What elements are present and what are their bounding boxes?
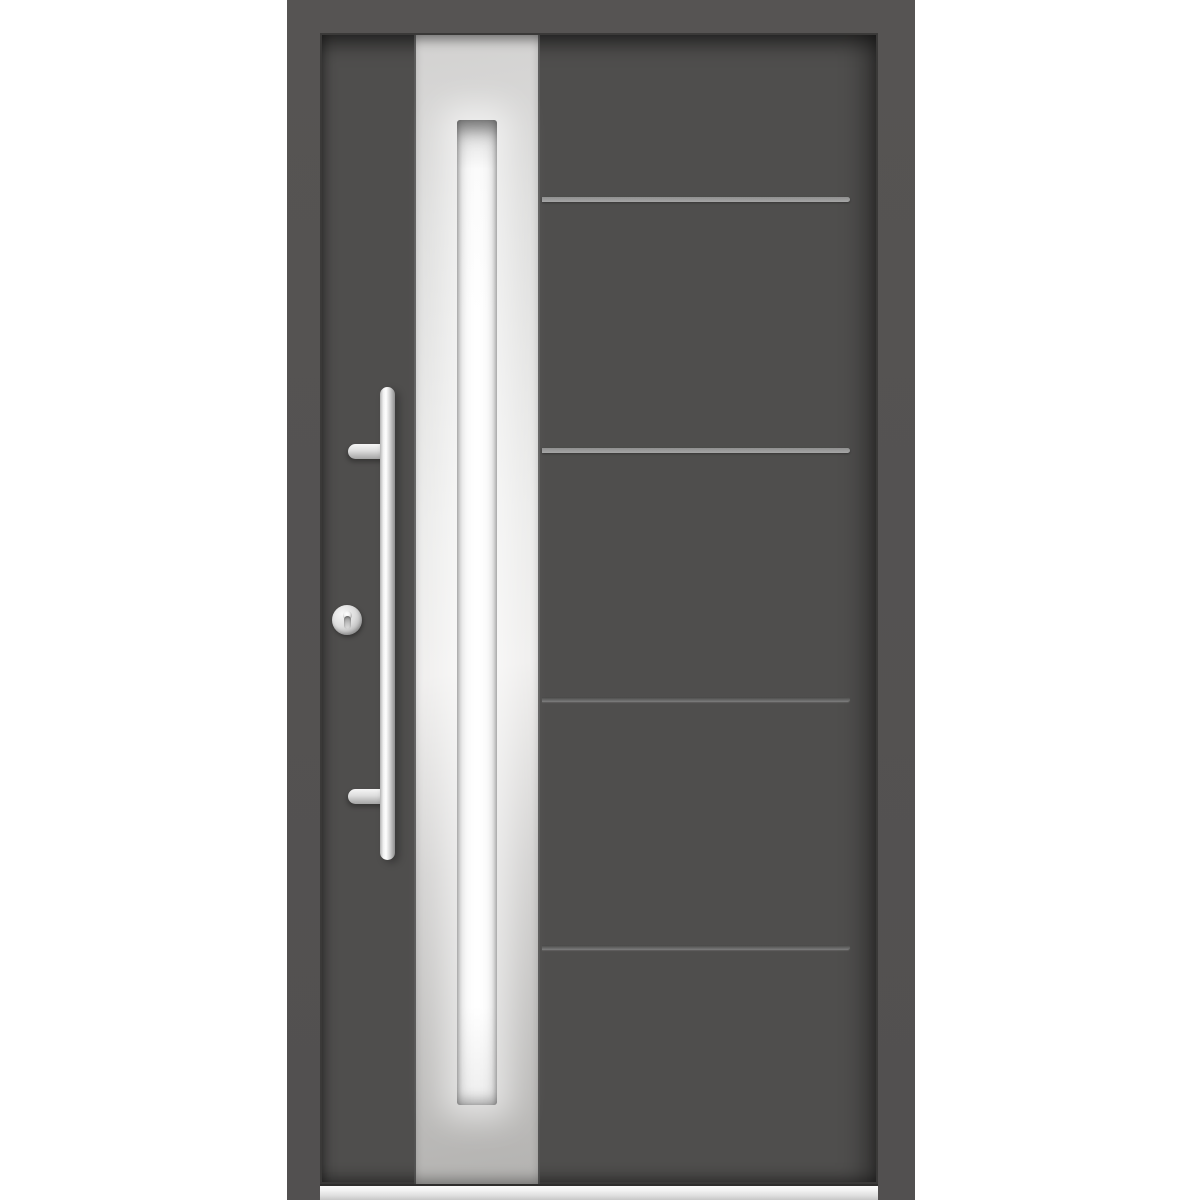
door-leaf (320, 33, 878, 1184)
door-handle (380, 387, 395, 860)
trim-line-3 (542, 697, 850, 702)
threshold (320, 1184, 878, 1200)
lock-cylinder (332, 605, 362, 635)
trim-line-1 (542, 197, 850, 202)
keyhole-slot-icon (344, 616, 351, 629)
steel-panel (414, 35, 540, 1186)
door-product-photo (0, 0, 1200, 1200)
trim-line-2 (542, 448, 850, 453)
trim-line-4 (542, 945, 850, 950)
glass-insert (457, 120, 497, 1105)
